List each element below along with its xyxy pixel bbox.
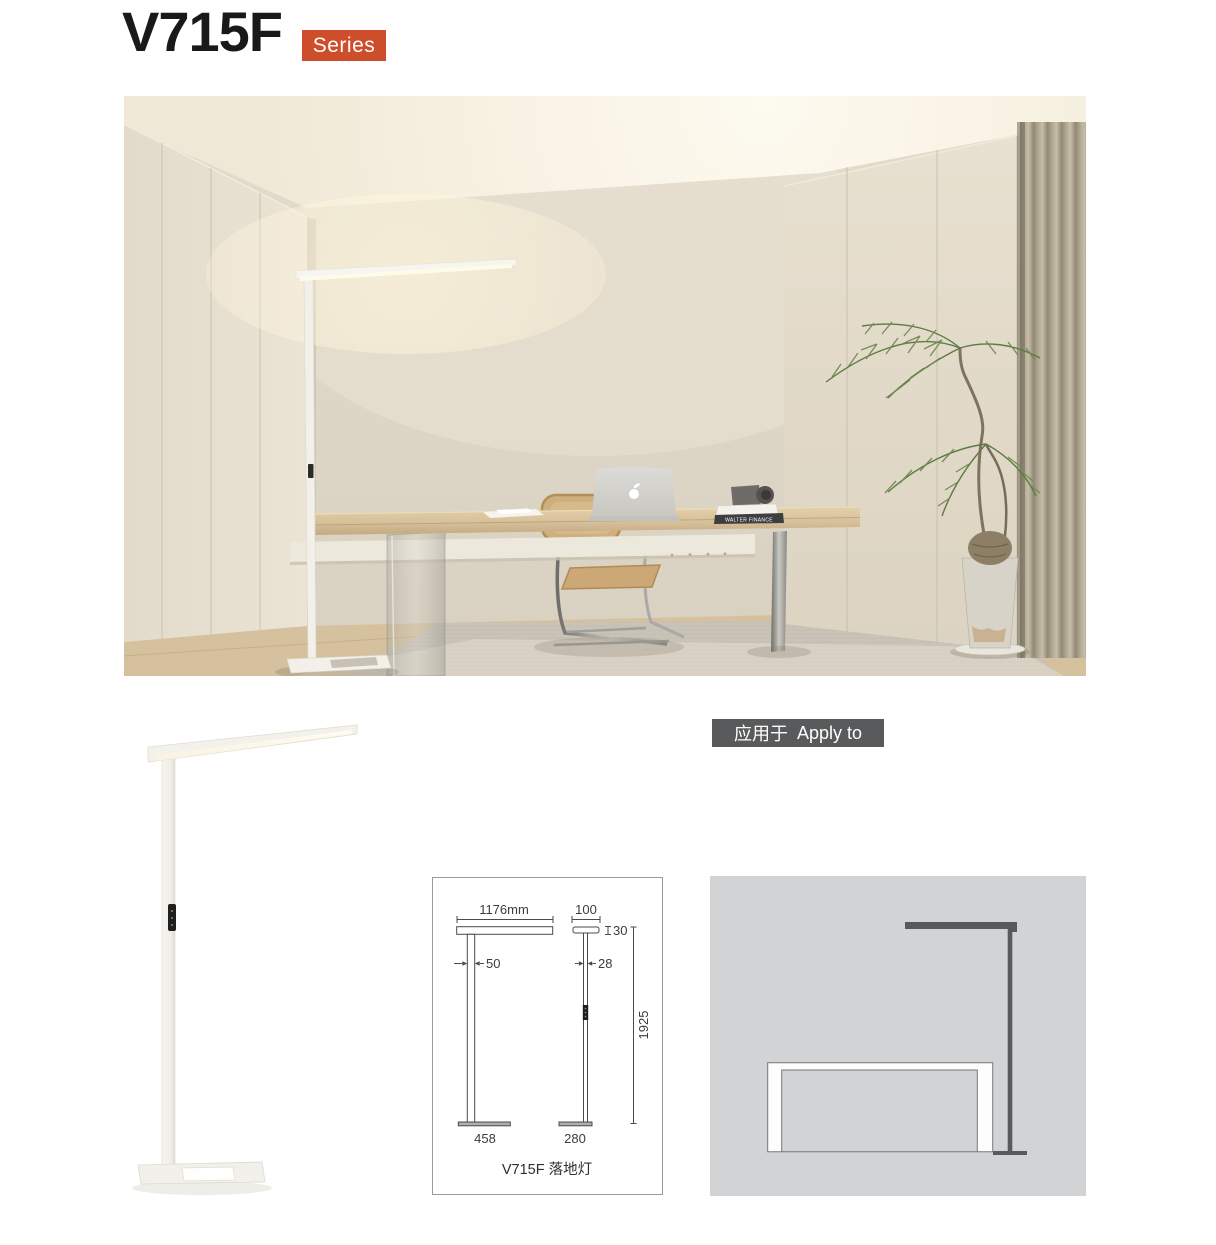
page-title: V715F xyxy=(122,2,282,62)
camera-lens-inner xyxy=(761,490,771,500)
dim-base-width: 458 xyxy=(474,1131,496,1146)
book-top xyxy=(716,504,778,515)
laptop xyxy=(588,467,680,521)
product-lamp-pole xyxy=(162,756,175,1173)
diagram-lamp-base xyxy=(993,1151,1027,1155)
apply-to-label-en: Apply to xyxy=(797,723,862,744)
apply-diagram-background xyxy=(710,876,1086,1196)
series-badge-label: Series xyxy=(313,34,376,58)
product-lamp-base-cutout xyxy=(182,1167,235,1181)
chair-shadow xyxy=(534,637,684,657)
desk-chrome-leg xyxy=(771,531,787,652)
dim-total-height: 1925 xyxy=(636,1011,651,1040)
series-badge: Series xyxy=(302,30,386,61)
room-photo: WALTER FINANCE xyxy=(124,96,1086,676)
curtain-shadow-edge xyxy=(1017,122,1025,658)
curtain-fabric xyxy=(1020,122,1086,658)
curtain xyxy=(1017,122,1086,658)
leg-shadow xyxy=(747,646,811,658)
dim-head-height: 30 xyxy=(613,923,627,938)
dim-head-width: 1176mm xyxy=(479,902,529,917)
lamp-control-panel xyxy=(308,464,314,478)
product-lamp-image xyxy=(110,700,430,1245)
book-spine-text: WALTER FINANCE xyxy=(725,518,773,524)
diagram-lamp-head xyxy=(905,922,1017,929)
dim-head-depth: 100 xyxy=(575,902,597,917)
apply-to-badge: 应用于 Apply to xyxy=(712,719,884,747)
page-container: V715F Series xyxy=(0,0,1216,1245)
apply-diagram xyxy=(710,876,1086,1196)
diagram-lamp-pole xyxy=(1008,929,1013,1152)
chair-seat xyxy=(562,565,660,589)
spec-drawing: 1176mm 50 458 100 30 28 1925 280 V715F 落… xyxy=(432,877,663,1195)
plant-rootball xyxy=(968,531,1012,565)
laptop-base xyxy=(588,516,680,521)
dim-pole-width: 50 xyxy=(486,956,500,971)
desk-glass-leg xyxy=(387,532,445,676)
spec-drawing-caption: V715F 落地灯 xyxy=(502,1161,592,1178)
dim-pole-depth: 28 xyxy=(598,956,612,971)
dim-base-depth: 280 xyxy=(564,1131,586,1146)
apply-to-label-cn: 应用于 xyxy=(734,720,788,746)
